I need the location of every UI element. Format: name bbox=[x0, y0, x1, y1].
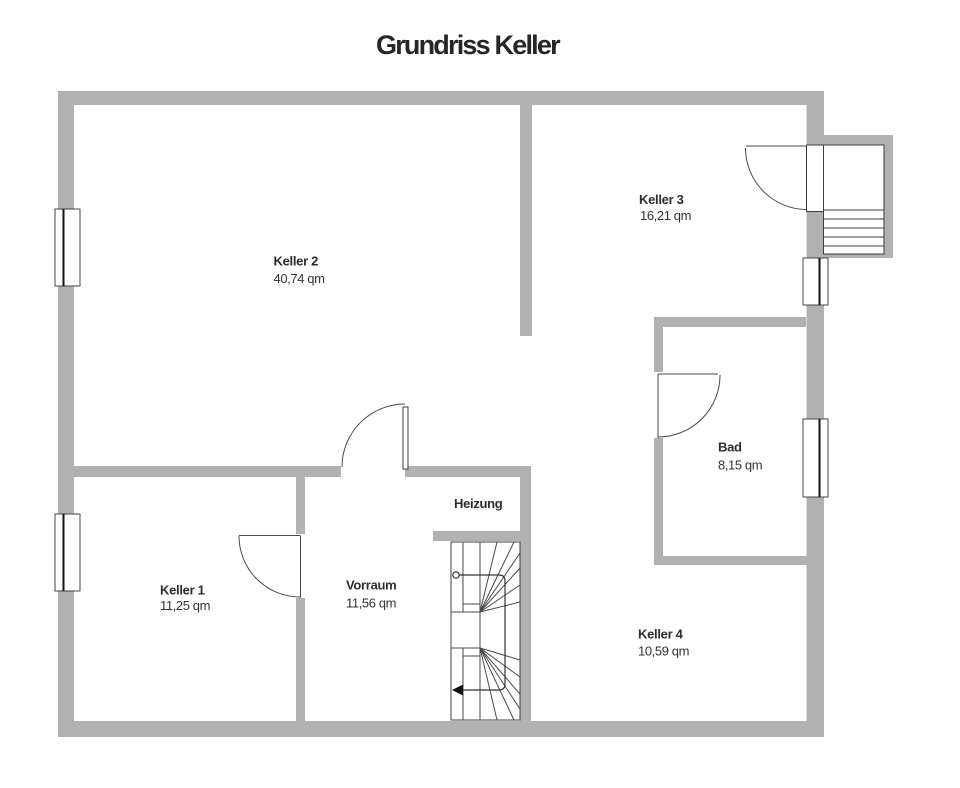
svg-text:8,15 qm: 8,15 qm bbox=[718, 458, 762, 473]
svg-text:Keller 4: Keller 4 bbox=[638, 627, 684, 642]
svg-text:Keller 3: Keller 3 bbox=[639, 192, 684, 207]
svg-text:Grundriss Keller: Grundriss Keller bbox=[376, 30, 561, 60]
svg-text:40,74 qm: 40,74 qm bbox=[274, 271, 325, 286]
svg-text:10,59 qm: 10,59 qm bbox=[638, 644, 689, 659]
svg-text:Bad: Bad bbox=[718, 440, 742, 455]
svg-text:Keller 2: Keller 2 bbox=[274, 254, 319, 269]
svg-text:16,21 qm: 16,21 qm bbox=[640, 208, 691, 223]
svg-text:11,25 qm: 11,25 qm bbox=[160, 598, 210, 613]
svg-text:11,56 qm: 11,56 qm bbox=[346, 596, 396, 611]
svg-text:Heizung: Heizung bbox=[454, 496, 503, 511]
svg-text:Vorraum: Vorraum bbox=[346, 578, 396, 593]
svg-text:Keller 1: Keller 1 bbox=[160, 583, 205, 598]
